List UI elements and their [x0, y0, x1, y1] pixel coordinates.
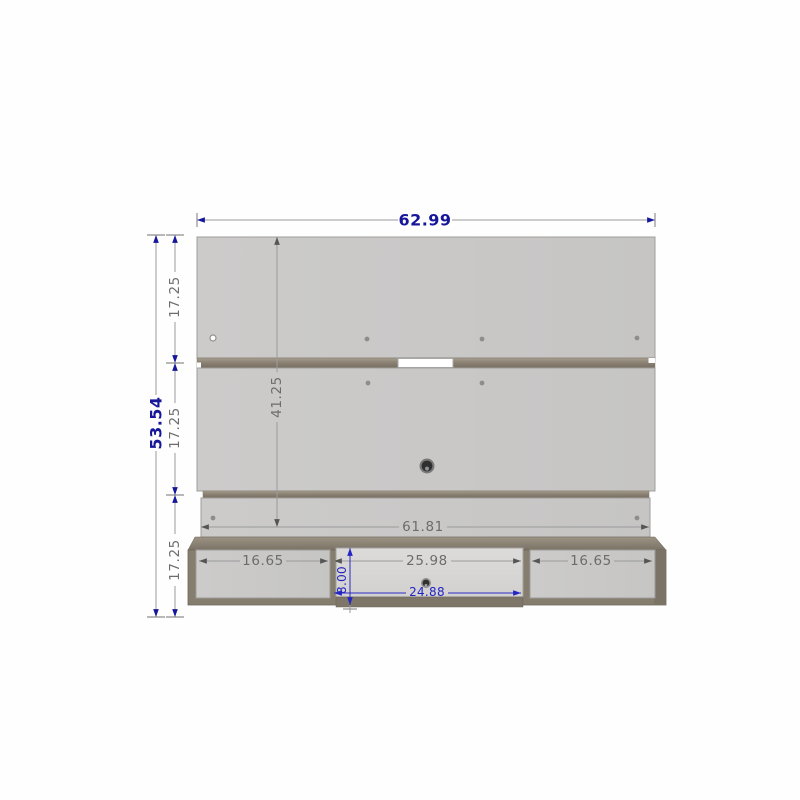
mounting-hole-ring [210, 335, 216, 341]
dim-panel-span-height-label: 41.25 [269, 376, 285, 418]
dim-bottom-rail-width-label: 61.81 [402, 519, 444, 535]
dim-shelf-height-label: 8.00 [335, 566, 349, 594]
mounting-hole [366, 381, 371, 386]
mounting-hole [635, 336, 640, 341]
divider-notch-cutout [398, 359, 453, 368]
cable-grommet-hole [420, 459, 435, 474]
wall-panel-unit [188, 237, 666, 607]
screenshot-canvas: 62.99 53.54 17.25 17.25 17.25 41.25 61.8… [0, 0, 800, 800]
divider-gap-right [649, 358, 656, 363]
grommet-notch [425, 467, 429, 471]
dim-upper-panel-height-label: 17.25 [167, 276, 183, 318]
mounting-hole [635, 516, 640, 521]
divider-strip-lower [203, 491, 649, 498]
shelf-right-edge [654, 550, 666, 605]
mounting-hole [211, 516, 216, 521]
mounting-hole [365, 337, 370, 342]
dim-lower-section-height-label: 17.25 [167, 539, 183, 581]
dim-overall-width-label: 62.99 [398, 211, 451, 230]
top-panel [197, 237, 655, 358]
mounting-hole [480, 381, 485, 386]
dim-shelf-left-width-label: 16.65 [242, 553, 284, 569]
dim-shelf-right-width-label: 16.65 [570, 553, 612, 569]
dimension-drawing: 62.99 53.54 17.25 17.25 17.25 41.25 61.8… [0, 0, 800, 800]
dim-overall-width: 62.99 [197, 211, 655, 230]
divider-gap-left [197, 363, 201, 369]
dim-middle-panel-height-label: 17.25 [167, 407, 183, 449]
dim-overall-height-label: 53.54 [147, 396, 166, 449]
dim-shelf-middle-width-label: 25.98 [406, 553, 448, 569]
mounting-hole [480, 337, 485, 342]
dim-overall-height: 53.54 [147, 235, 166, 617]
dim-section-heights: 17.25 17.25 17.25 [166, 235, 184, 617]
dim-shelf-opening-width-label: 24.88 [409, 585, 445, 599]
